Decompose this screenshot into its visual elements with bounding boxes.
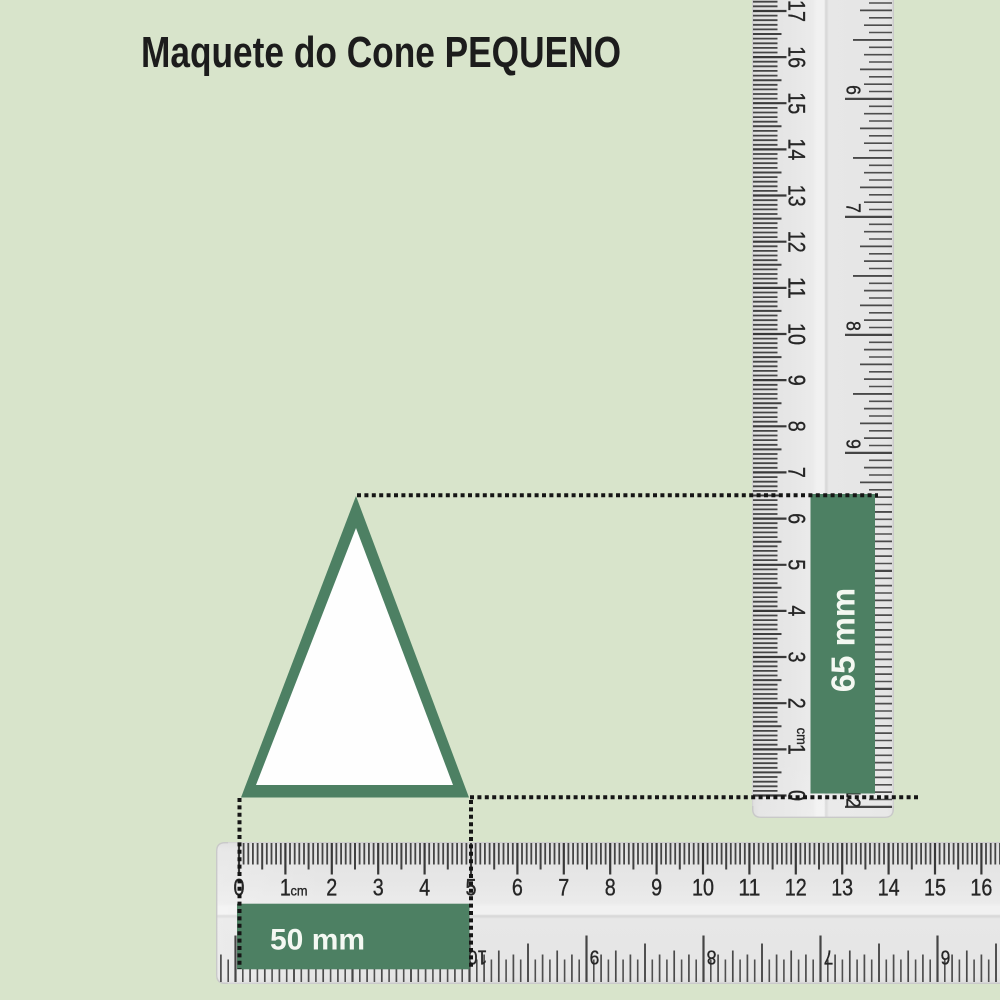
svg-text:6: 6 [941, 945, 951, 967]
svg-text:2: 2 [783, 698, 810, 709]
svg-text:8: 8 [707, 945, 717, 967]
svg-text:7: 7 [783, 467, 810, 478]
svg-text:14: 14 [783, 138, 810, 160]
svg-text:3: 3 [373, 875, 384, 902]
svg-text:4: 4 [783, 605, 810, 616]
svg-text:6: 6 [783, 513, 810, 524]
svg-text:Maquete do Cone PEQUENO: Maquete do Cone PEQUENO [141, 28, 621, 77]
svg-text:2: 2 [326, 875, 337, 902]
svg-text:7: 7 [824, 945, 834, 967]
svg-text:9: 9 [783, 375, 810, 386]
svg-text:cm: cm [291, 883, 308, 899]
svg-text:3: 3 [783, 652, 810, 663]
svg-text:11: 11 [738, 875, 760, 902]
svg-text:8: 8 [842, 321, 864, 331]
svg-text:50 mm: 50 mm [270, 924, 365, 957]
svg-text:16: 16 [970, 875, 992, 902]
svg-text:65 mm: 65 mm [825, 588, 862, 693]
svg-text:cm: cm [794, 728, 810, 745]
svg-text:8: 8 [783, 421, 810, 432]
svg-text:8: 8 [605, 875, 616, 902]
svg-text:12: 12 [783, 231, 810, 253]
svg-text:15: 15 [924, 875, 946, 902]
svg-text:9: 9 [590, 945, 600, 967]
svg-text:17: 17 [783, 0, 810, 22]
svg-text:5: 5 [783, 559, 810, 570]
svg-text:6: 6 [512, 875, 523, 902]
svg-text:11: 11 [783, 277, 810, 299]
svg-text:16: 16 [783, 46, 810, 68]
svg-text:1: 1 [280, 875, 291, 902]
svg-text:10: 10 [692, 875, 714, 902]
svg-text:6: 6 [842, 85, 864, 95]
svg-text:12: 12 [785, 875, 807, 902]
svg-text:14: 14 [878, 875, 900, 902]
svg-text:7: 7 [842, 203, 864, 213]
svg-text:15: 15 [783, 92, 810, 114]
svg-text:9: 9 [842, 439, 864, 449]
svg-text:13: 13 [783, 185, 810, 207]
svg-text:9: 9 [651, 875, 662, 902]
svg-text:10: 10 [783, 323, 810, 345]
svg-text:7: 7 [558, 875, 569, 902]
svg-text:4: 4 [419, 875, 430, 902]
svg-text:13: 13 [831, 875, 853, 902]
svg-text:1: 1 [783, 744, 810, 755]
